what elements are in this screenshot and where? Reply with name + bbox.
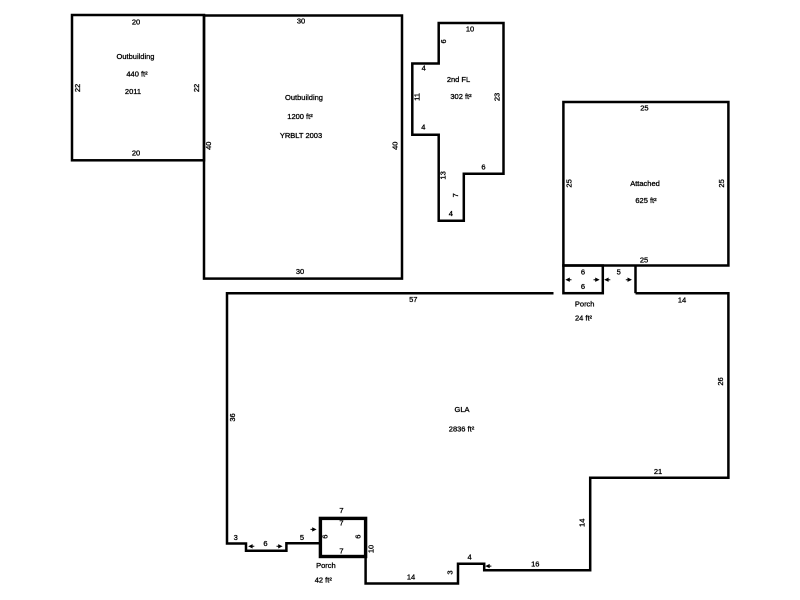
svg-text:7: 7 [451, 193, 460, 197]
svg-text:21: 21 [654, 467, 662, 476]
svg-text:Attached: Attached [630, 179, 660, 188]
svg-text:30: 30 [296, 267, 304, 276]
svg-text:2nd FL: 2nd FL [447, 75, 470, 84]
svg-text:14: 14 [678, 296, 686, 305]
svg-text:40: 40 [204, 142, 213, 150]
svg-text:5: 5 [300, 533, 304, 542]
svg-text:2836 ft²: 2836 ft² [449, 424, 475, 433]
svg-text:625 ft²: 625 ft² [635, 196, 657, 205]
svg-text:4: 4 [421, 123, 425, 132]
svg-text:302 ft²: 302 ft² [450, 92, 472, 101]
svg-text:1200 ft²: 1200 ft² [287, 112, 313, 121]
svg-text:YRBLT 2003: YRBLT 2003 [280, 131, 322, 140]
svg-text:7: 7 [339, 546, 343, 555]
svg-text:24 ft²: 24 ft² [575, 314, 593, 323]
svg-text:25: 25 [564, 179, 573, 187]
svg-text:26: 26 [716, 377, 725, 385]
svg-text:10: 10 [466, 24, 474, 33]
svg-text:6: 6 [353, 535, 362, 539]
svg-text:20: 20 [132, 18, 140, 27]
svg-text:10: 10 [367, 545, 376, 553]
svg-text:7: 7 [339, 518, 343, 527]
svg-text:14: 14 [578, 519, 587, 527]
svg-text:6: 6 [263, 539, 267, 548]
svg-text:6: 6 [581, 268, 585, 277]
svg-text:7: 7 [339, 506, 343, 515]
svg-text:GLA: GLA [454, 405, 469, 414]
svg-text:57: 57 [409, 295, 417, 304]
svg-text:4: 4 [468, 552, 472, 561]
svg-text:30: 30 [297, 17, 305, 26]
svg-text:13: 13 [439, 171, 448, 179]
svg-text:5: 5 [617, 268, 621, 277]
svg-text:25: 25 [640, 104, 648, 113]
svg-text:22: 22 [192, 84, 201, 92]
svg-text:23: 23 [493, 93, 502, 101]
svg-text:Porch: Porch [575, 300, 595, 309]
svg-text:4: 4 [422, 64, 426, 73]
svg-text:3: 3 [446, 570, 455, 574]
svg-text:Porch: Porch [316, 561, 336, 570]
svg-text:11: 11 [413, 93, 422, 101]
svg-text:6: 6 [481, 163, 485, 172]
svg-text:20: 20 [132, 149, 140, 158]
svg-text:2011: 2011 [125, 87, 141, 96]
svg-text:Outbuilding: Outbuilding [285, 93, 323, 102]
svg-text:6: 6 [581, 282, 585, 291]
svg-text:6: 6 [321, 535, 330, 539]
svg-text:25: 25 [640, 256, 648, 265]
svg-text:16: 16 [531, 559, 539, 568]
svg-text:42 ft²: 42 ft² [315, 576, 333, 585]
svg-text:36: 36 [228, 413, 237, 421]
svg-text:3: 3 [234, 533, 238, 542]
svg-text:4: 4 [449, 209, 453, 218]
svg-text:Outbuilding: Outbuilding [117, 52, 155, 61]
svg-text:40: 40 [390, 142, 399, 150]
svg-text:440 ft²: 440 ft² [126, 70, 148, 79]
svg-text:14: 14 [407, 573, 415, 582]
svg-text:6: 6 [439, 39, 448, 43]
svg-text:22: 22 [73, 84, 82, 92]
svg-text:25: 25 [717, 179, 726, 187]
